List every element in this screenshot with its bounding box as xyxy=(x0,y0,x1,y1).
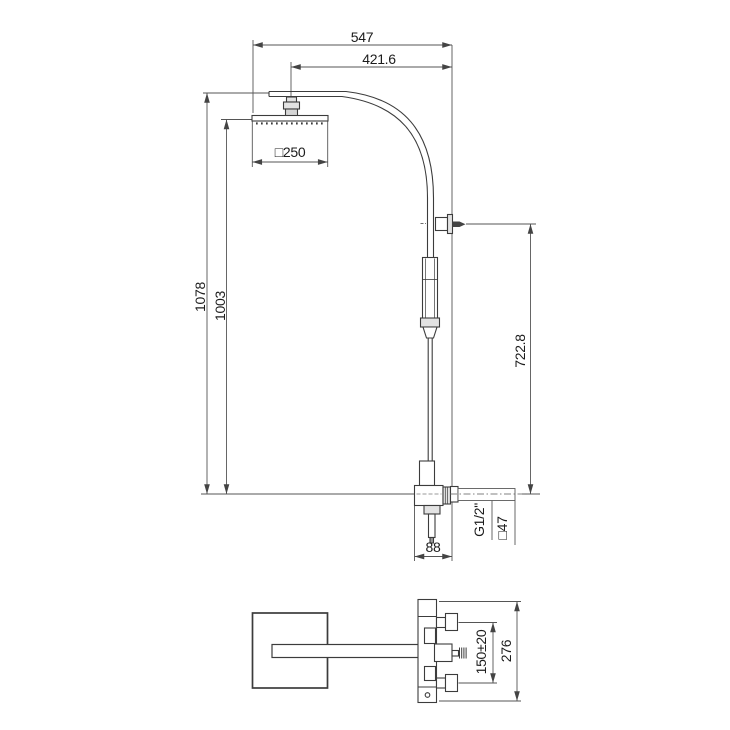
plan-view xyxy=(253,600,467,703)
head-connector-nut xyxy=(284,97,300,116)
dim-overall-width-label: 547 xyxy=(351,30,373,44)
dim-body-depth-label: 88 xyxy=(426,540,441,554)
plan-valve-and-handle xyxy=(435,644,467,662)
plan-mounting-plate xyxy=(418,600,437,703)
hand-shower xyxy=(421,258,440,339)
dim-outlet-thread-label: G1/2" xyxy=(472,503,486,537)
dim-inlet-spacing-label: 150±20 xyxy=(474,630,488,675)
dim-height-to-head-label: 1003 xyxy=(213,291,227,321)
rain-shower-head xyxy=(252,116,328,124)
dim-column-height-label: 722.8 xyxy=(513,334,527,368)
drawing-linework xyxy=(0,0,730,730)
dim-outlet-square-label: □47 xyxy=(495,516,509,539)
dimension-lines xyxy=(201,40,540,701)
dim-arm-projection-label: 421.6 xyxy=(362,52,396,66)
valve-body xyxy=(415,486,459,506)
technical-drawing-canvas: 547 421.6 □250 1078 1003 722.8 G1/2" □47… xyxy=(0,0,730,730)
bracket-screw xyxy=(453,222,466,228)
plan-arm xyxy=(272,645,437,658)
valve-handle xyxy=(424,506,440,544)
dim-head-width-label: □250 xyxy=(275,145,306,159)
dim-height-to-arm-label: 1078 xyxy=(193,282,207,312)
hand-shower-hose xyxy=(420,338,435,486)
dim-plate-height-label: 276 xyxy=(499,640,513,662)
